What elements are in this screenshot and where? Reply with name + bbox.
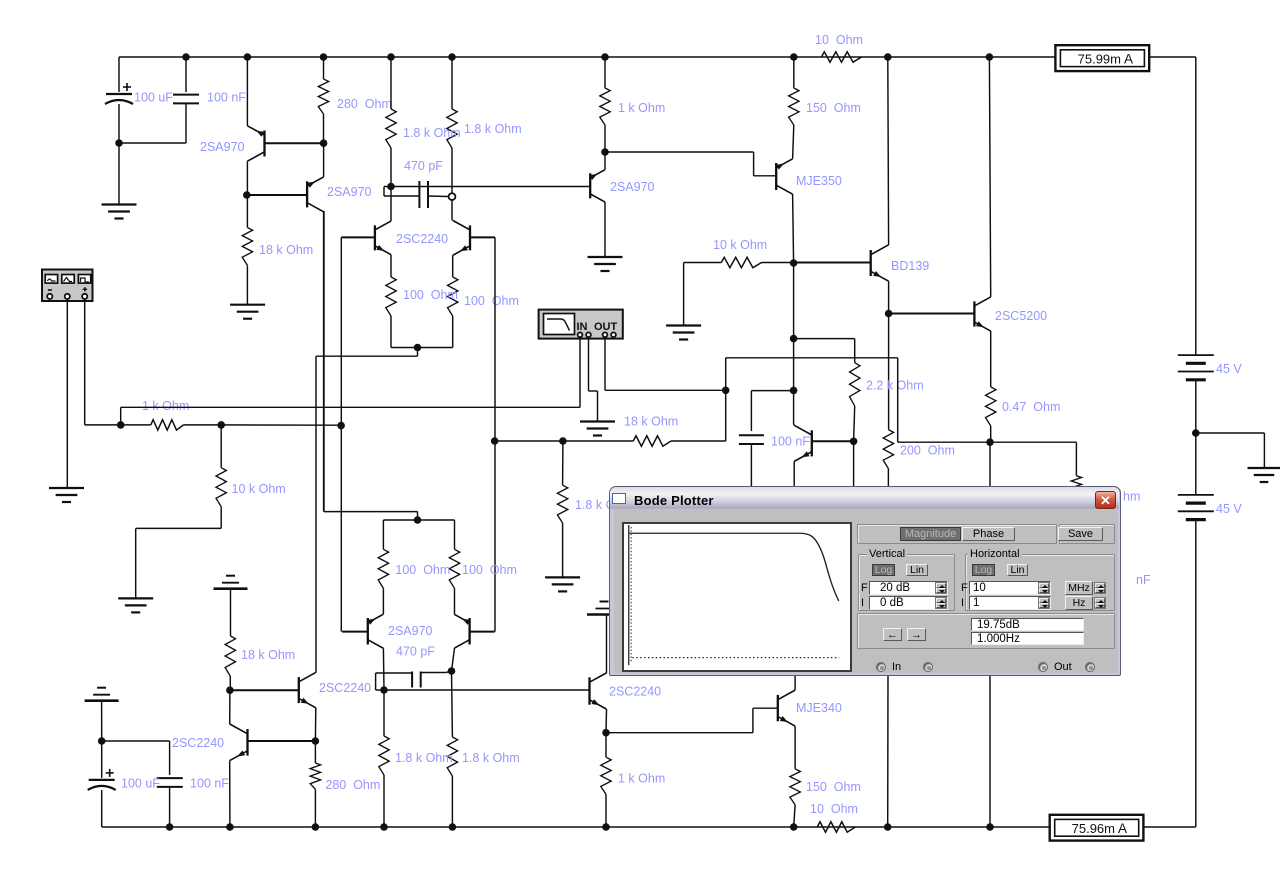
svg-text:45 V: 45 V bbox=[1216, 362, 1242, 376]
svg-text:10 k Ohm: 10 k Ohm bbox=[232, 482, 286, 496]
svg-text:100 uF: 100 uF bbox=[134, 91, 173, 105]
svg-text:470 pF: 470 pF bbox=[396, 645, 435, 659]
svg-text:MJE340: MJE340 bbox=[796, 701, 842, 715]
svg-text:2.2 k Ohm: 2.2 k Ohm bbox=[866, 378, 924, 392]
svg-text:280 Ohm: 280 Ohm bbox=[337, 97, 392, 111]
svg-text:2SC5200: 2SC5200 bbox=[995, 309, 1047, 323]
svg-text:hm: hm bbox=[1123, 490, 1140, 504]
svg-text:2SC2240: 2SC2240 bbox=[172, 736, 224, 750]
svg-text:18 k Ohm: 18 k Ohm bbox=[624, 415, 678, 429]
svg-text:2SA970: 2SA970 bbox=[388, 624, 433, 638]
svg-text:1 k Ohm: 1 k Ohm bbox=[618, 771, 665, 785]
svg-text:1.8 k Ohm: 1.8 k Ohm bbox=[464, 122, 522, 136]
svg-text:100 Ohm: 100 Ohm bbox=[462, 563, 517, 577]
svg-text:0.47 Ohm: 0.47 Ohm bbox=[1002, 400, 1060, 414]
svg-text:2SA970: 2SA970 bbox=[610, 180, 655, 194]
svg-text:10 Ohm: 10 Ohm bbox=[815, 33, 863, 47]
svg-text:10 k Ohm: 10 k Ohm bbox=[713, 238, 767, 252]
svg-text:100 Ohm: 100 Ohm bbox=[403, 288, 458, 302]
svg-text:2SA970: 2SA970 bbox=[327, 185, 372, 199]
svg-text:200 Ohm: 200 Ohm bbox=[900, 444, 955, 458]
svg-text:18 k Ohm: 18 k Ohm bbox=[259, 243, 313, 257]
svg-text:100 nF: 100 nF bbox=[771, 434, 810, 448]
svg-text:100 nF: 100 nF bbox=[190, 777, 229, 791]
svg-text:A: A bbox=[1124, 52, 1133, 67]
svg-text:100 Ohm: 100 Ohm bbox=[464, 294, 519, 308]
svg-text:100 nF: 100 nF bbox=[207, 91, 246, 105]
svg-text:100 Ohm: 100 Ohm bbox=[395, 563, 450, 577]
svg-text:75.99m: 75.99m bbox=[1078, 51, 1121, 66]
svg-text:1.8 k Ohm: 1.8 k Ohm bbox=[403, 126, 461, 140]
svg-text:2SA970: 2SA970 bbox=[200, 140, 245, 154]
svg-text:2SC2240: 2SC2240 bbox=[319, 681, 371, 695]
svg-text:2SC2240: 2SC2240 bbox=[396, 232, 448, 246]
svg-text:280 Ohm: 280 Ohm bbox=[325, 778, 380, 792]
svg-text:nF: nF bbox=[1136, 573, 1151, 587]
svg-text:2SC2240: 2SC2240 bbox=[609, 685, 661, 699]
svg-text:IN: IN bbox=[577, 321, 588, 333]
svg-text:470 pF: 470 pF bbox=[404, 159, 443, 173]
svg-text:150 Ohm: 150 Ohm bbox=[806, 780, 861, 794]
svg-text:1.8 k Ohm: 1.8 k Ohm bbox=[395, 751, 453, 765]
svg-text:10 Ohm: 10 Ohm bbox=[810, 802, 858, 816]
svg-text:BD139: BD139 bbox=[891, 259, 929, 273]
svg-text:1 k Ohm: 1 k Ohm bbox=[618, 101, 665, 115]
svg-text:1.8 k Ohm: 1.8 k Ohm bbox=[462, 751, 520, 765]
svg-text:A: A bbox=[1118, 821, 1127, 836]
svg-text:150 Ohm: 150 Ohm bbox=[806, 101, 861, 115]
svg-text:45 V: 45 V bbox=[1216, 502, 1242, 516]
svg-text:100 uF: 100 uF bbox=[121, 777, 160, 791]
svg-text:1 k Ohm: 1 k Ohm bbox=[142, 399, 189, 413]
svg-text:MJE350: MJE350 bbox=[796, 174, 842, 188]
svg-text:18 k Ohm: 18 k Ohm bbox=[241, 648, 295, 662]
svg-text:75.96m: 75.96m bbox=[1072, 821, 1115, 836]
svg-text:OUT: OUT bbox=[594, 321, 618, 333]
